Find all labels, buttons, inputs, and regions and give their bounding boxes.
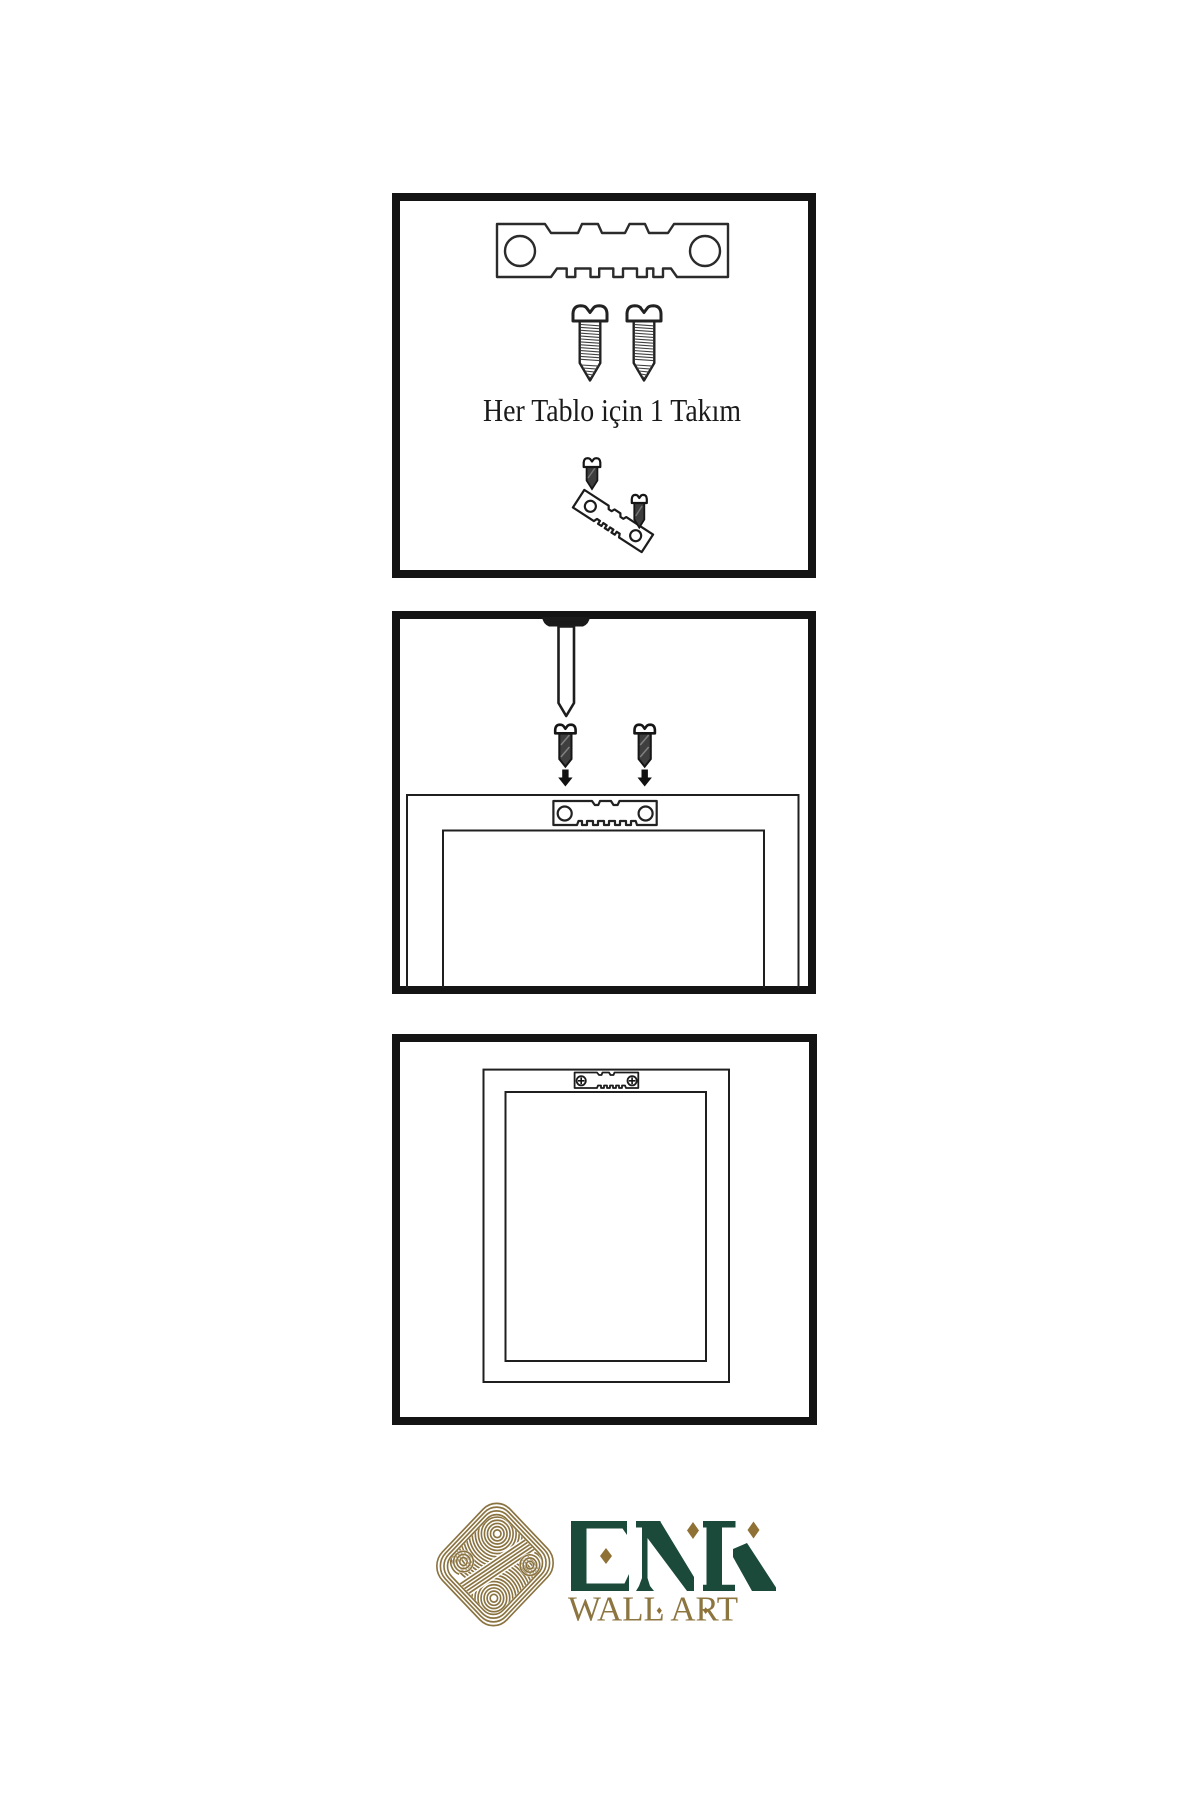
svg-text:Her Tablo için 1 Takım: Her Tablo için 1 Takım xyxy=(483,393,741,428)
svg-text:WALL ART: WALL ART xyxy=(568,1590,738,1629)
